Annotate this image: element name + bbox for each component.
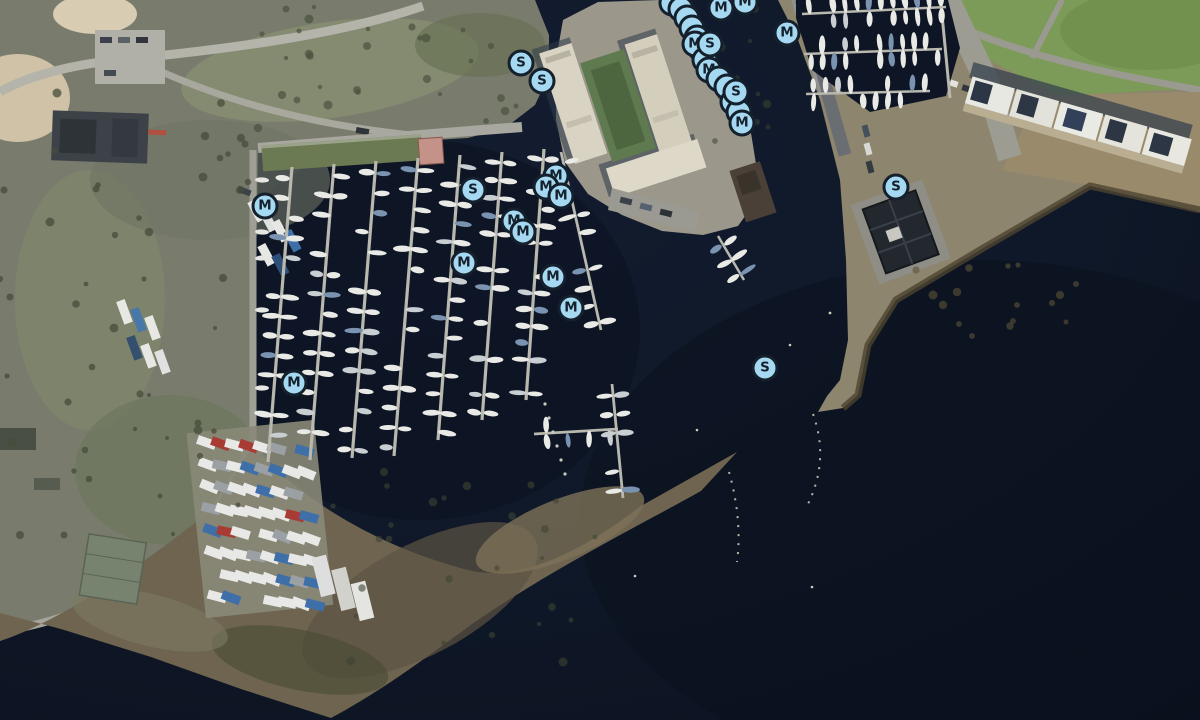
map-marker-m[interactable]: M <box>729 110 756 137</box>
map-marker-m[interactable]: M <box>558 295 585 322</box>
map-marker-m[interactable]: M <box>252 193 279 220</box>
satellite-map[interactable]: MMMSMSMMSSMSMMMMMMMMMSS <box>0 0 1200 720</box>
map-marker-m[interactable]: M <box>281 370 308 397</box>
map-marker-s[interactable]: S <box>460 177 487 204</box>
map-marker-s[interactable]: S <box>723 79 750 106</box>
map-marker-m[interactable]: M <box>451 250 478 277</box>
map-marker-s[interactable]: S <box>752 355 779 382</box>
map-marker-m[interactable]: M <box>732 0 759 16</box>
map-marker-s[interactable]: S <box>697 31 724 58</box>
map-marker-m[interactable]: M <box>548 183 575 210</box>
map-marker-m[interactable]: M <box>774 20 801 47</box>
map-marker-m[interactable]: M <box>708 0 735 22</box>
marker-layer: MMMSMSMMSSMSMMMMMMMMMSS <box>0 0 1200 720</box>
map-marker-m[interactable]: M <box>540 264 567 291</box>
map-marker-s[interactable]: S <box>883 174 910 201</box>
map-marker-m[interactable]: M <box>510 219 537 246</box>
map-marker-s[interactable]: S <box>529 68 556 95</box>
